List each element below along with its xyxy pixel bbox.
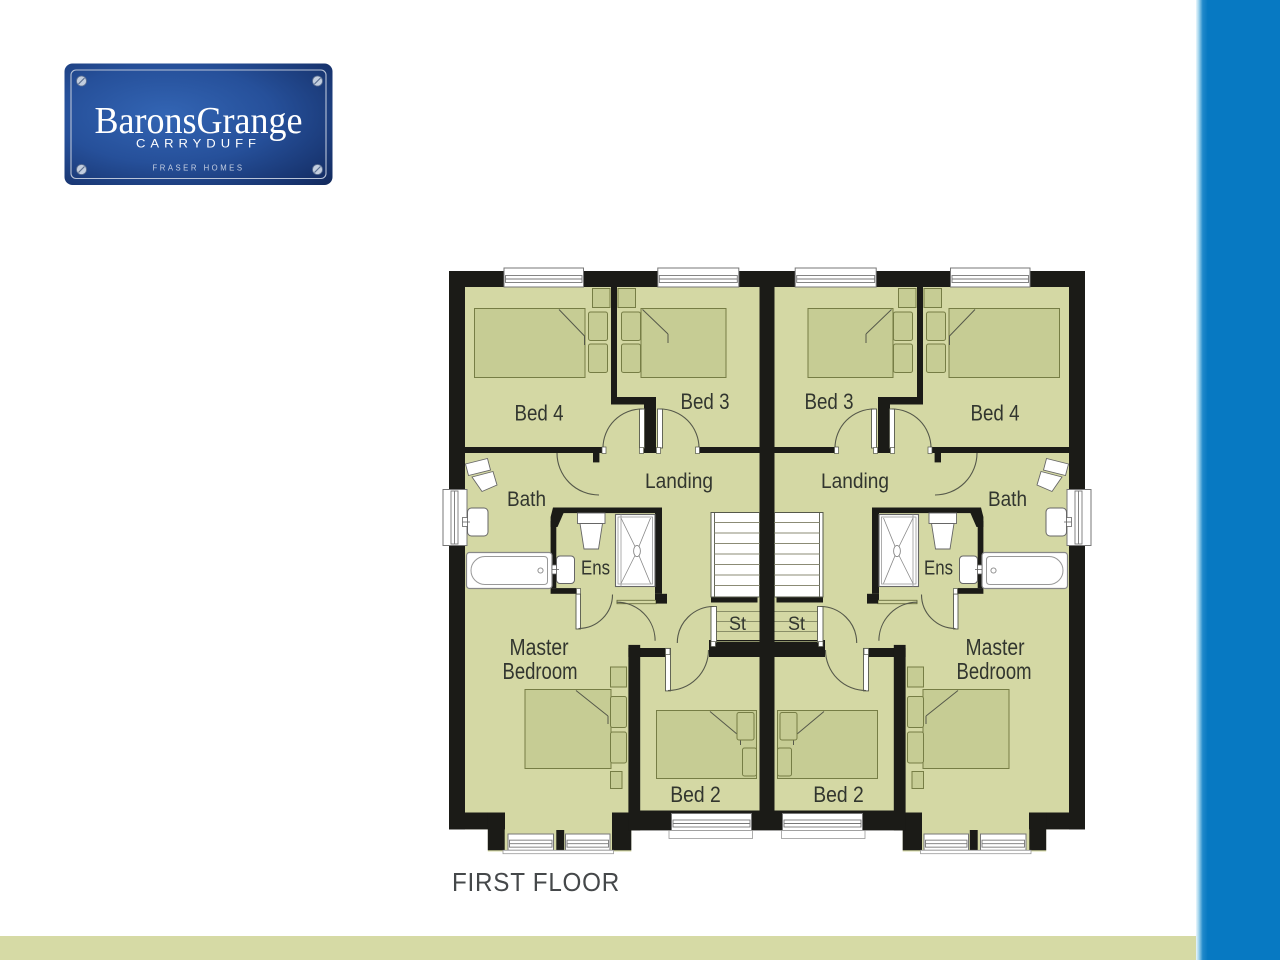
svg-text:Bed 3: Bed 3: [681, 389, 730, 414]
svg-text:Landing: Landing: [645, 469, 713, 493]
svg-text:Master: Master: [966, 634, 1025, 660]
svg-text:Master: Master: [510, 634, 569, 660]
svg-text:Bath: Bath: [507, 488, 546, 511]
svg-text:Bed 2: Bed 2: [670, 782, 721, 807]
svg-text:Ens: Ens: [924, 558, 953, 580]
svg-text:Bed 4: Bed 4: [515, 401, 564, 426]
svg-text:Bath: Bath: [988, 488, 1027, 511]
svg-text:Bed 2: Bed 2: [813, 782, 864, 807]
svg-text:Ens: Ens: [581, 558, 610, 580]
svg-text:CARRYDUFF: CARRYDUFF: [136, 137, 261, 151]
svg-text:Bed 4: Bed 4: [971, 401, 1020, 426]
svg-text:Bed 3: Bed 3: [805, 389, 854, 414]
svg-text:Landing: Landing: [821, 469, 889, 493]
svg-text:St: St: [729, 613, 747, 635]
svg-text:Bedroom: Bedroom: [503, 658, 578, 684]
svg-text:FRASER HOMES: FRASER HOMES: [153, 164, 245, 173]
svg-text:Bedroom: Bedroom: [957, 658, 1032, 684]
svg-text:FIRST FLOOR: FIRST FLOOR: [452, 869, 620, 897]
svg-text:St: St: [788, 613, 806, 635]
